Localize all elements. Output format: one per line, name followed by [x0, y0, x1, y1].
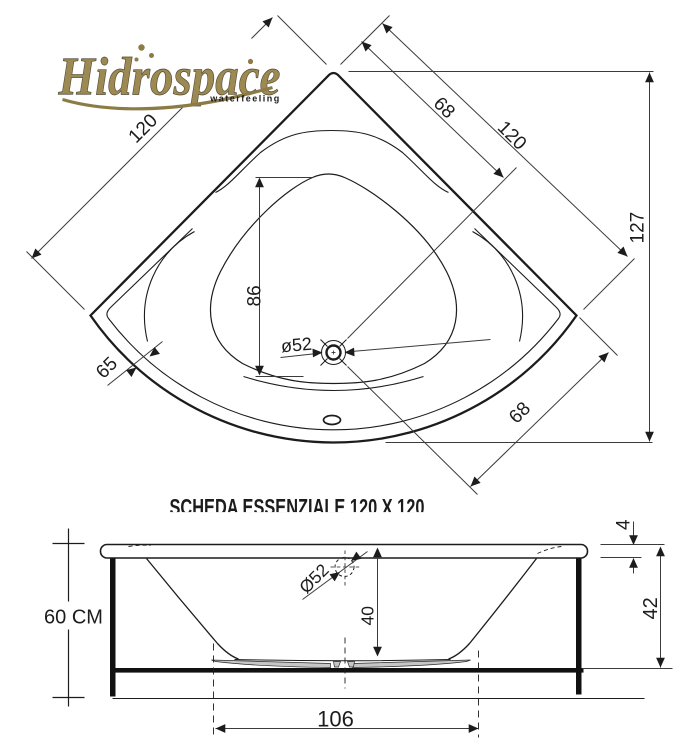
- svg-text:waterfeeling: waterfeeling: [209, 94, 281, 104]
- svg-text:120: 120: [493, 117, 530, 154]
- svg-text:4: 4: [614, 519, 635, 530]
- svg-text:86: 86: [245, 285, 266, 306]
- svg-text:120: 120: [125, 110, 162, 147]
- svg-text:Ø52: Ø52: [295, 560, 333, 598]
- svg-text:40: 40: [358, 606, 378, 626]
- svg-text:65: 65: [92, 353, 122, 383]
- svg-text:68: 68: [505, 398, 535, 428]
- svg-text:60 CM: 60 CM: [44, 607, 103, 629]
- svg-text:68: 68: [429, 93, 459, 123]
- svg-text:106: 106: [317, 707, 354, 732]
- svg-text:ø52: ø52: [280, 334, 313, 357]
- svg-text:127: 127: [628, 212, 649, 244]
- svg-text:42: 42: [640, 597, 662, 619]
